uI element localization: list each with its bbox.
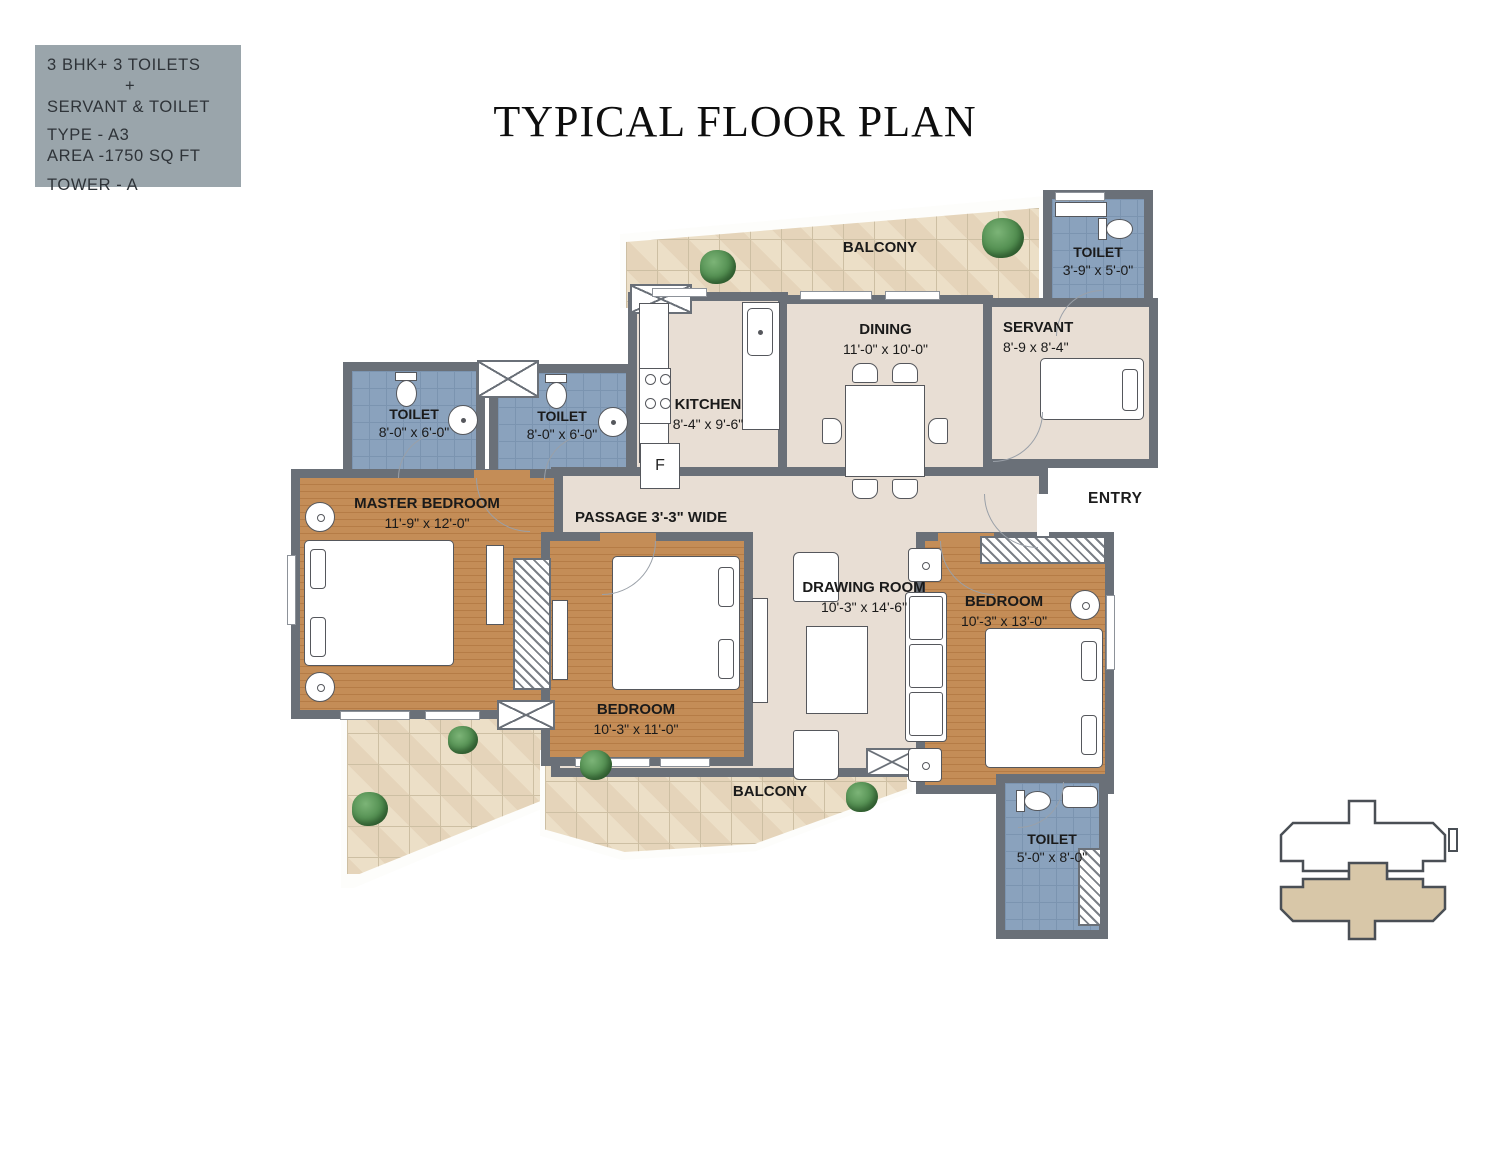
bathtub-icon [1062, 786, 1098, 808]
sofa-cushion [909, 692, 943, 736]
floor-plan-page: 3 BHK+ 3 TOILETS + SERVANT & TOILET TYPE… [0, 0, 1500, 1163]
area-line: AREA -1750 SQ FT [47, 146, 229, 167]
window [885, 291, 940, 300]
unit-info-box: 3 BHK+ 3 TOILETS + SERVANT & TOILET TYPE… [35, 45, 241, 187]
dining-chair [852, 479, 878, 499]
balcony-top-label: BALCONY [740, 238, 1020, 258]
dining-table [845, 385, 925, 477]
shaft-balcony-icon [497, 700, 555, 730]
dining-chair [892, 479, 918, 499]
toilet-top-right-label: TOILET 3'-9" x 5'-0" [1043, 243, 1153, 279]
dining-label: DINING 11'-0" x 10'-0" [778, 320, 993, 358]
plus-sign: + [47, 76, 229, 97]
window [1106, 595, 1115, 670]
pillow-icon [310, 617, 326, 657]
dresser [486, 545, 504, 625]
window [1055, 192, 1105, 201]
servant-toilet-line: SERVANT & TOILET [47, 97, 229, 118]
kitchen-label: KITCHEN 8'-4" x 9'-6" [628, 395, 788, 433]
type-line: TYPE - A3 [47, 125, 229, 146]
bedroom-right-label: BEDROOM 10'-3" x 13'-0" [924, 592, 1084, 630]
pillow-icon [310, 549, 326, 589]
side-table-icon [908, 748, 942, 782]
bedroom-center-label: BEDROOM 10'-3" x 11'-0" [551, 700, 721, 738]
wc-icon [545, 374, 567, 409]
window [425, 711, 480, 720]
window [800, 291, 872, 300]
window [660, 758, 710, 767]
master-bed [304, 540, 454, 666]
toilet-tr-shelf [1055, 202, 1107, 217]
master-bedroom-label: MASTER BEDROOM 11'-9" x 12'-0" [301, 494, 553, 532]
pillow-icon [718, 639, 734, 679]
servant-bed [1040, 358, 1144, 420]
shaft-toilets-icon [477, 360, 539, 398]
dining-chair [852, 363, 878, 383]
coffee-table [806, 626, 868, 714]
sofa-cushion [909, 644, 943, 688]
passage-label: PASSAGE 3'-3" WIDE [575, 508, 727, 528]
dining-chair [822, 418, 842, 444]
window [340, 711, 410, 720]
armchair [793, 730, 839, 780]
entry-label: ENTRY [1088, 490, 1142, 508]
wardrobe-bedroom-right [980, 536, 1106, 564]
pillow-icon [1122, 369, 1138, 411]
pillow-icon [718, 567, 734, 607]
kitchen-sink-icon [747, 308, 773, 356]
toilet-left-1-label: TOILET 8'-0" x 6'-0" [343, 405, 485, 441]
key-plan-icon [1253, 795, 1468, 945]
nightstand-icon [305, 672, 335, 702]
wc-icon [395, 372, 417, 407]
toilet-bottom-label: TOILET 5'-0" x 8'-0" [996, 830, 1108, 866]
balcony-bottom-label: BALCONY [660, 782, 880, 802]
toilet-left-2-label: TOILET 8'-0" x 6'-0" [489, 407, 635, 443]
dresser [552, 600, 568, 680]
page-title: TYPICAL FLOOR PLAN [360, 96, 1110, 147]
window [652, 288, 707, 297]
dining-chair [928, 418, 948, 444]
pillow-icon [1081, 715, 1097, 755]
dining-chair [892, 363, 918, 383]
fridge: F [640, 443, 680, 489]
side-table-icon [908, 548, 942, 582]
window [287, 555, 296, 625]
unit-type-line: 3 BHK+ 3 TOILETS [47, 55, 229, 76]
wc-icon [1098, 218, 1133, 240]
wardrobe-master [513, 558, 551, 690]
pillow-icon [1081, 641, 1097, 681]
servant-label: SERVANT 8'-9 x 8'-4" [1003, 318, 1073, 356]
tower-line: TOWER - A [47, 175, 229, 196]
bedroom-right-bed [985, 628, 1103, 768]
tv-unit [752, 598, 768, 703]
